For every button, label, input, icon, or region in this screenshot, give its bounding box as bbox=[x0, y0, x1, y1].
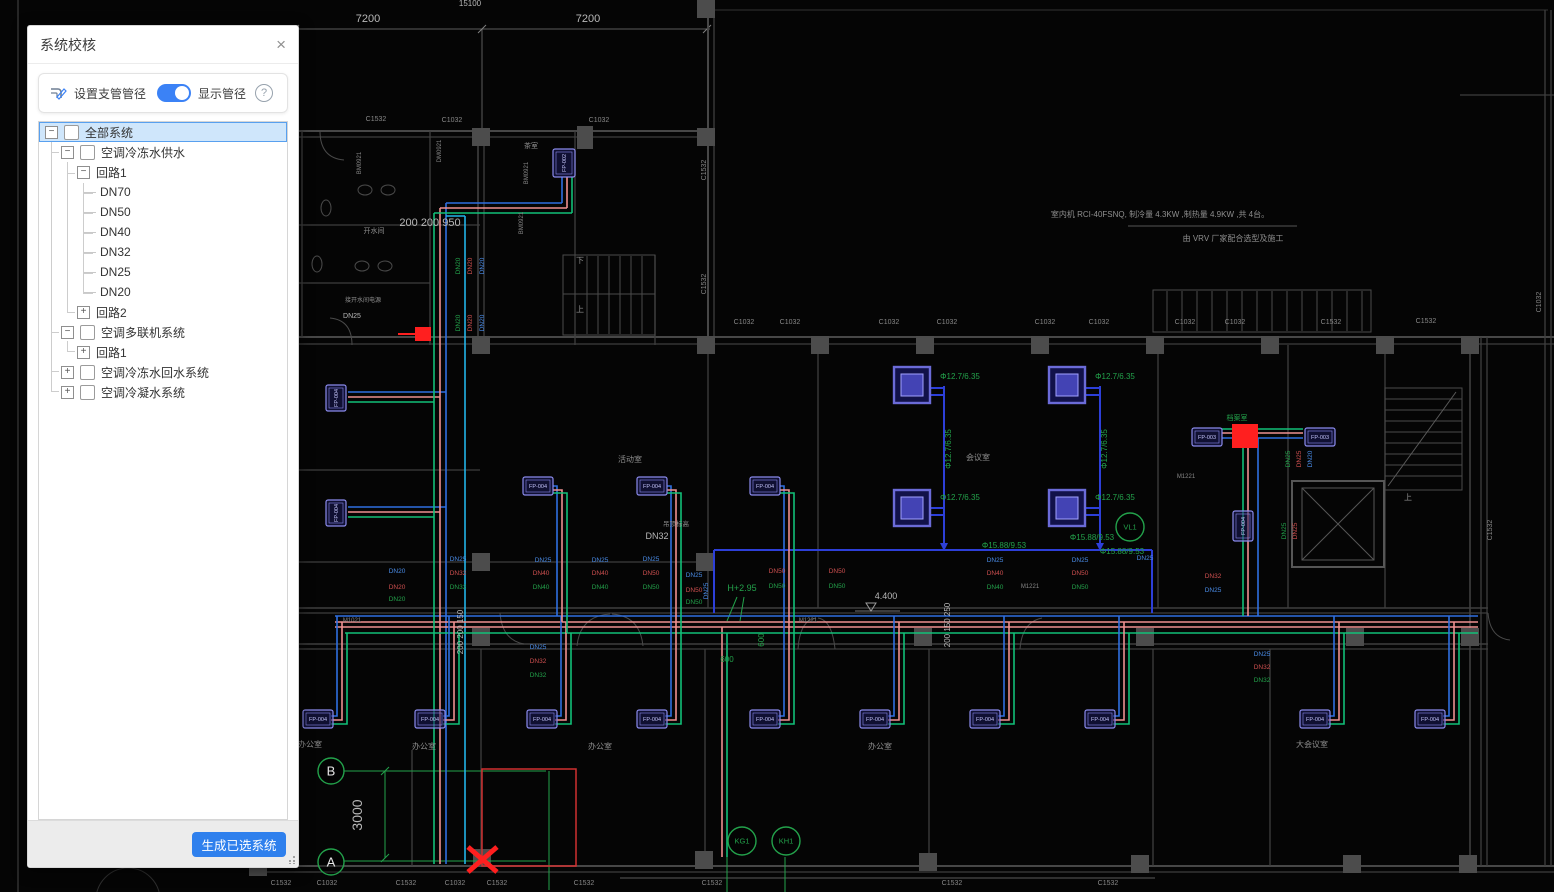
tree-item-label: 全部系统 bbox=[85, 124, 133, 141]
tree-branch-line bbox=[84, 212, 96, 213]
plan-label: 吊顶标高 bbox=[663, 519, 690, 528]
fan-coil-unit[interactable]: FP-004 bbox=[1085, 710, 1115, 728]
tree-item-label: DN20 bbox=[100, 285, 131, 299]
unit-label: FP-004 bbox=[1241, 517, 1247, 535]
plan-label: DN40 bbox=[592, 584, 609, 591]
fan-coil-unit[interactable]: FP-004 bbox=[523, 477, 553, 495]
plan-label: DN50 bbox=[643, 584, 660, 591]
fan-coil-unit[interactable]: FP-002 bbox=[553, 149, 575, 177]
vrv-cassette-unit[interactable] bbox=[894, 490, 930, 526]
plan-label: 茶室 bbox=[524, 141, 538, 150]
unit-label: FP-004 bbox=[866, 717, 884, 723]
app-screen: FP-004FP-004FP-004FP-004FP-004FP-004FP-0… bbox=[0, 0, 1554, 892]
collapse-icon[interactable]: − bbox=[45, 126, 58, 139]
plan-label: 200 200 950 bbox=[399, 217, 460, 229]
tree-item-label: 回路2 bbox=[96, 304, 127, 321]
plan-label: C1032 bbox=[589, 117, 610, 124]
fan-coil-unit[interactable]: FP-004 bbox=[1233, 511, 1253, 541]
tree-item[interactable]: DN32 bbox=[39, 242, 287, 262]
tree-item-label: 空调冷冻水供水 bbox=[101, 144, 185, 161]
plan-label: DN40 bbox=[592, 570, 609, 577]
plan-label: 15100 bbox=[459, 0, 482, 8]
plan-label: BM0921 bbox=[519, 211, 525, 234]
fan-coil-unit[interactable]: FP-004 bbox=[970, 710, 1000, 728]
plan-label: Φ15.88/9.53 bbox=[1070, 533, 1115, 542]
plan-label: 上 bbox=[1404, 493, 1412, 502]
plan-label: 开水间 bbox=[364, 226, 385, 235]
tree-item[interactable]: DN25 bbox=[39, 262, 287, 282]
collapse-icon[interactable]: − bbox=[61, 326, 74, 339]
checkbox[interactable] bbox=[80, 385, 95, 400]
plan-label: DN32 bbox=[450, 584, 467, 591]
plan-label: 办公室 bbox=[868, 741, 892, 751]
red-selected-equipment bbox=[1232, 424, 1258, 448]
plan-label: DN20 bbox=[455, 314, 462, 331]
tree-item[interactable]: −空调冷冻水供水 bbox=[39, 142, 287, 162]
plan-label: DN20 bbox=[479, 257, 486, 274]
unit-label: FP-004 bbox=[1091, 717, 1109, 723]
tree-item-label: 空调冷冻水回水系统 bbox=[101, 364, 209, 381]
toggle-knob bbox=[175, 86, 189, 100]
tree-item[interactable]: +空调冷凝水系统 bbox=[39, 382, 287, 402]
tree-branch-line bbox=[84, 252, 96, 253]
plan-label: C1532 bbox=[487, 880, 508, 887]
plan-label: M1221 bbox=[1177, 474, 1196, 480]
fan-coil-unit[interactable]: FP-004 bbox=[860, 710, 890, 728]
plan-label: DN25 bbox=[1285, 450, 1292, 467]
fan-coil-unit[interactable]: FP-004 bbox=[750, 477, 780, 495]
vrv-cassette-unit[interactable] bbox=[1049, 490, 1085, 526]
unit-label: FP-004 bbox=[334, 389, 340, 407]
plan-label: DN25 bbox=[450, 556, 467, 563]
plan-label: DN32 bbox=[530, 658, 547, 665]
fan-coil-unit[interactable]: FP-004 bbox=[326, 500, 346, 526]
panel-footer: 生成已选系统 bbox=[28, 820, 298, 867]
checkbox[interactable] bbox=[80, 325, 95, 340]
plan-label: DN25 bbox=[703, 582, 710, 599]
svg-text:A: A bbox=[327, 855, 336, 870]
grid-bubble-b: B bbox=[318, 758, 344, 784]
tree-item[interactable]: −回路1 bbox=[39, 162, 287, 182]
plan-label: C1032 bbox=[1035, 319, 1056, 326]
plan-label: M1221 bbox=[799, 618, 818, 624]
show-diameter-toggle[interactable] bbox=[157, 84, 191, 102]
plan-label: 办公室 bbox=[588, 741, 612, 751]
fan-coil-unit[interactable]: FP-004 bbox=[750, 710, 780, 728]
unit-label: FP-004 bbox=[533, 717, 551, 723]
system-tree: −全部系统−空调冷冻水供水−回路1DN70DN50DN40DN32DN25DN2… bbox=[38, 121, 288, 820]
plan-label: DN32 bbox=[530, 672, 547, 679]
fan-coil-unit[interactable]: FP-004 bbox=[303, 710, 333, 728]
plan-label: 室内机 RCI-40FSNQ, 制冷量 4.3KW ,制热量 4.9KW ,共 … bbox=[1051, 209, 1269, 219]
plan-label: M1221 bbox=[1021, 584, 1040, 590]
tree-item-label: DN40 bbox=[100, 225, 131, 239]
unit-label: FP-003 bbox=[1311, 435, 1329, 441]
plan-label: C1032 bbox=[1175, 319, 1196, 326]
plan-label: DN20 bbox=[389, 596, 406, 603]
plan-label: C1032 bbox=[937, 319, 958, 326]
plan-label: DN50 bbox=[686, 599, 703, 606]
plan-label: DN20 bbox=[467, 314, 474, 331]
plan-label: Φ12.7/6.35 bbox=[1100, 429, 1109, 469]
fan-coil-unit[interactable]: FP-004 bbox=[326, 385, 346, 411]
expand-icon[interactable]: + bbox=[77, 346, 90, 359]
svg-text:B: B bbox=[327, 764, 336, 779]
resize-grip[interactable] bbox=[287, 856, 295, 864]
system-check-panel: 系统校核 × 设置支管管径 显示管径 ? −全部系统−空调冷冻水供水−回路1DN… bbox=[27, 25, 299, 868]
tree-item[interactable]: −空调多联机系统 bbox=[39, 322, 287, 342]
plan-label: 活动室 bbox=[618, 454, 642, 464]
plan-label: DN50 bbox=[1072, 584, 1089, 591]
plan-label: C1032 bbox=[1089, 319, 1110, 326]
unit-label: FP-004 bbox=[643, 717, 661, 723]
plan-label: Φ12.7/6.35 bbox=[940, 493, 980, 502]
close-icon[interactable]: × bbox=[276, 36, 286, 53]
plan-label: Φ12.7/6.35 bbox=[1095, 372, 1135, 381]
plan-label: 办公室 bbox=[298, 739, 322, 749]
plan-label: DN25 bbox=[987, 557, 1004, 564]
set-branch-pipe-label[interactable]: 设置支管管径 bbox=[74, 85, 146, 102]
plan-label: 上 bbox=[576, 305, 584, 314]
unit-label: FP-004 bbox=[309, 717, 327, 723]
plan-label: Φ12.7/6.35 bbox=[940, 372, 980, 381]
expand-icon[interactable]: + bbox=[77, 306, 90, 319]
tree-item-label: 空调多联机系统 bbox=[101, 324, 185, 341]
plan-label: DN20 bbox=[455, 257, 462, 274]
plan-label: 由 VRV 厂家配合选型及施工 bbox=[1183, 233, 1284, 243]
plan-label: 会议室 bbox=[966, 452, 990, 462]
vrv-cassette-unit[interactable] bbox=[1049, 367, 1085, 403]
panel-header: 系统校核 × bbox=[28, 26, 298, 64]
unit-label: FP-004 bbox=[421, 717, 439, 723]
plan-label: C1532 bbox=[574, 880, 595, 887]
checkbox[interactable] bbox=[80, 145, 95, 160]
plan-label: 下 bbox=[576, 256, 584, 265]
plan-label: DN50 bbox=[769, 583, 786, 590]
tree-item-label: DN25 bbox=[100, 265, 131, 279]
plan-label: DN40 bbox=[533, 584, 550, 591]
unit-label: FP-002 bbox=[562, 154, 568, 172]
unit-label: FP-004 bbox=[976, 717, 994, 723]
help-icon[interactable]: ? bbox=[255, 84, 273, 102]
plan-label: C1032 bbox=[1536, 292, 1543, 313]
tree-item-label: 回路1 bbox=[96, 164, 127, 181]
plan-label: C1532 bbox=[942, 880, 963, 887]
tree-item[interactable]: +回路2 bbox=[39, 302, 287, 322]
svg-text:KG1: KG1 bbox=[734, 837, 749, 846]
unit-label: FP-004 bbox=[1306, 717, 1324, 723]
fan-coil-unit[interactable]: FP-004 bbox=[637, 710, 667, 728]
plan-label: 3000 bbox=[349, 799, 365, 830]
plan-label: 档案室 bbox=[1227, 413, 1248, 422]
plan-label: 600 bbox=[757, 633, 766, 647]
checkbox[interactable] bbox=[80, 365, 95, 380]
plan-label: DN25 bbox=[1137, 555, 1154, 562]
plan-label: DN20 bbox=[479, 314, 486, 331]
tag-kh1: KH1 bbox=[772, 827, 800, 855]
plan-label: H+2.95 bbox=[727, 583, 756, 593]
unit-label: FP-004 bbox=[756, 484, 774, 490]
plan-label: 200 150 250 bbox=[943, 602, 952, 647]
tag-kg1: KG1 bbox=[728, 827, 756, 855]
plan-label: DN25 bbox=[1072, 557, 1089, 564]
fan-coil-unit[interactable]: FP-003 bbox=[1192, 428, 1222, 446]
tree-item-label: DN50 bbox=[100, 205, 131, 219]
fan-coil-unit[interactable]: FP-004 bbox=[637, 477, 667, 495]
show-diameter-label: 显示管径 bbox=[198, 85, 246, 102]
tree-item-label: 空调冷凝水系统 bbox=[101, 384, 185, 401]
plan-label: C1032 bbox=[780, 319, 801, 326]
expand-icon[interactable]: + bbox=[61, 366, 74, 379]
plan-label: C1532 bbox=[271, 880, 292, 887]
plan-label: C1532 bbox=[701, 160, 708, 181]
plan-label: C1532 bbox=[1321, 319, 1342, 326]
tree-branch-line bbox=[84, 292, 96, 293]
plan-label: DN50 bbox=[769, 568, 786, 575]
tree-item[interactable]: DN40 bbox=[39, 222, 287, 242]
expand-icon[interactable]: + bbox=[61, 386, 74, 399]
panel-title: 系统校核 bbox=[40, 35, 96, 55]
plan-label: C1032 bbox=[1225, 319, 1246, 326]
plan-label: C1532 bbox=[1487, 520, 1494, 541]
plan-label: DN32 bbox=[450, 570, 467, 577]
plan-label: DN25 bbox=[592, 557, 609, 564]
fan-coil-unit[interactable]: FP-004 bbox=[415, 710, 445, 728]
plan-label: DN20 bbox=[467, 257, 474, 274]
tree-item-label: DN70 bbox=[100, 185, 131, 199]
plan-label: DN50 bbox=[829, 568, 846, 575]
tree-item-label: DN32 bbox=[100, 245, 131, 259]
plan-label: 大会议室 bbox=[1296, 739, 1328, 749]
svg-text:KH1: KH1 bbox=[779, 837, 794, 846]
plan-label: Φ12.7/6.35 bbox=[1095, 493, 1135, 502]
plan-label: C1532 bbox=[1098, 880, 1119, 887]
plan-label: C1532 bbox=[1416, 318, 1437, 325]
tree-item[interactable]: DN20 bbox=[39, 282, 287, 302]
plan-label: C1032 bbox=[445, 880, 466, 887]
plan-label: DN25 bbox=[530, 644, 547, 651]
tree-item[interactable]: +回路1 bbox=[39, 342, 287, 362]
tree-item[interactable]: DN70 bbox=[39, 182, 287, 202]
plan-label: Φ12.7/6.35 bbox=[944, 429, 953, 469]
svg-text:VL1: VL1 bbox=[1123, 523, 1136, 532]
plan-label: DN40 bbox=[533, 570, 550, 577]
tag-vl1: VL1 bbox=[1116, 513, 1144, 541]
red-valve-marker bbox=[415, 327, 431, 341]
collapse-icon[interactable]: − bbox=[77, 166, 90, 179]
plan-label: 200 200 150 bbox=[456, 609, 465, 654]
plan-label: BM0921 bbox=[524, 161, 530, 184]
checkbox[interactable] bbox=[64, 125, 79, 140]
plan-label: 7200 bbox=[576, 13, 600, 25]
plan-label: DN20 bbox=[389, 568, 406, 575]
plan-label: DN50 bbox=[686, 587, 703, 594]
generate-selected-systems-button[interactable]: 生成已选系统 bbox=[192, 832, 286, 857]
unit-label: FP-003 bbox=[1198, 435, 1216, 441]
tree-item[interactable]: +空调冷冻水回水系统 bbox=[39, 362, 287, 382]
vrv-cassette-unit[interactable] bbox=[894, 367, 930, 403]
plan-label: M1021 bbox=[343, 618, 362, 624]
fan-coil-unit[interactable]: FP-004 bbox=[1415, 710, 1445, 728]
plan-label: BM0921 bbox=[357, 151, 363, 174]
tree-item-label: 回路1 bbox=[96, 344, 127, 361]
plan-label: 接开水间电源 bbox=[345, 296, 381, 304]
plan-label: DN40 bbox=[987, 570, 1004, 577]
plan-label: DN32 bbox=[1254, 664, 1271, 671]
plan-label: DN50 bbox=[1072, 570, 1089, 577]
plan-label: DN40 bbox=[987, 584, 1004, 591]
plan-label: Φ15.88/9.53 bbox=[982, 541, 1027, 550]
fan-coil-unit[interactable]: FP-004 bbox=[527, 710, 557, 728]
plan-label: DN25 bbox=[643, 556, 660, 563]
plan-label: DN20 bbox=[1307, 450, 1314, 467]
plan-label: DN32 bbox=[645, 531, 668, 541]
plan-label: C1032 bbox=[734, 319, 755, 326]
fan-coil-unit[interactable]: FP-003 bbox=[1305, 428, 1335, 446]
plan-label: DN32 bbox=[1205, 573, 1222, 580]
tree-item[interactable]: DN50 bbox=[39, 202, 287, 222]
unit-label: FP-004 bbox=[643, 484, 661, 490]
tree-branch-line bbox=[84, 192, 96, 193]
plan-label: 办公室 bbox=[412, 741, 436, 751]
unit-label: FP-004 bbox=[756, 717, 774, 723]
plan-label: DN50 bbox=[829, 583, 846, 590]
plan-label: C1532 bbox=[366, 116, 387, 123]
plan-label: 7200 bbox=[356, 13, 380, 25]
fan-coil-unit[interactable]: FP-004 bbox=[1300, 710, 1330, 728]
collapse-icon[interactable]: − bbox=[61, 146, 74, 159]
plan-label: DN25 bbox=[535, 557, 552, 564]
plan-label: C1532 bbox=[701, 274, 708, 295]
unit-label: FP-004 bbox=[334, 504, 340, 522]
plan-label: DM0921 bbox=[437, 139, 443, 162]
tree-item[interactable]: −全部系统 bbox=[39, 122, 287, 142]
plan-label: DN25 bbox=[1205, 587, 1222, 594]
unit-label: FP-004 bbox=[1421, 717, 1439, 723]
plan-label: DN20 bbox=[389, 584, 406, 591]
plan-label: 4.400 bbox=[875, 591, 898, 601]
plan-label: DN32 bbox=[1254, 677, 1271, 684]
grid-bubble-a: A bbox=[318, 849, 344, 875]
plan-label: DN25 bbox=[1254, 651, 1271, 658]
tree-branch-line bbox=[84, 232, 96, 233]
plan-label: DN25 bbox=[1292, 522, 1299, 539]
plan-label: DN25 bbox=[1281, 522, 1288, 539]
plan-label: 600 bbox=[720, 655, 734, 664]
plan-label: C1032 bbox=[879, 319, 900, 326]
unit-label: FP-004 bbox=[529, 484, 547, 490]
panel-toolbar: 设置支管管径 显示管径 ? bbox=[38, 73, 288, 113]
plan-label: C1532 bbox=[396, 880, 417, 887]
set-branch-pipe-icon bbox=[49, 84, 67, 102]
plan-label: C1032 bbox=[317, 880, 338, 887]
plan-label: DN25 bbox=[343, 313, 361, 320]
tree-branch-line bbox=[84, 272, 96, 273]
plan-label: DN25 bbox=[686, 572, 703, 579]
plan-label: C1532 bbox=[702, 880, 723, 887]
plan-label: C1032 bbox=[442, 117, 463, 124]
plan-label: DN25 bbox=[1296, 450, 1303, 467]
plan-label: DN50 bbox=[643, 570, 660, 577]
